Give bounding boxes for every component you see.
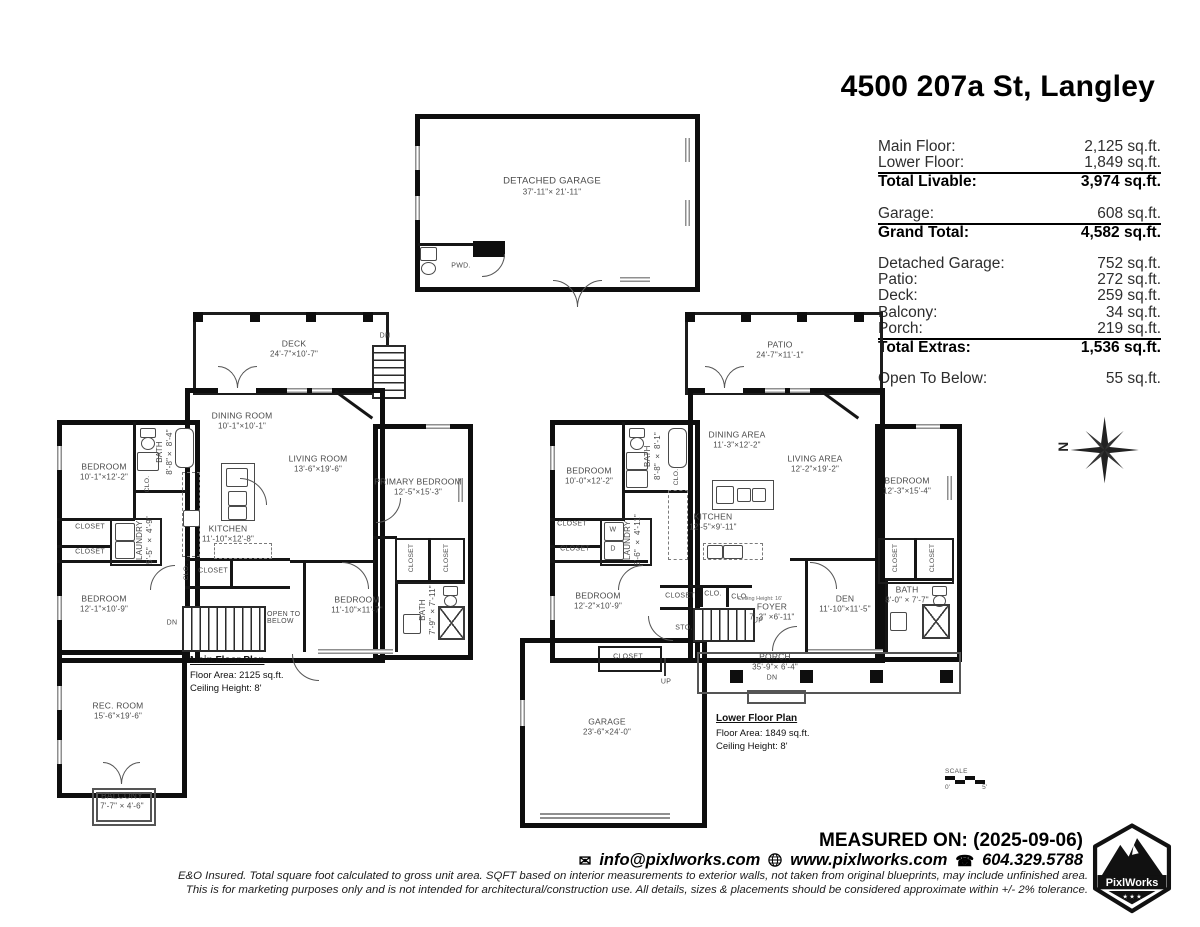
island-cooktop	[716, 486, 734, 504]
wall	[133, 490, 187, 493]
deck-post	[363, 312, 373, 322]
room-label-garage: GARAGE 23'-6"×24'-0"	[583, 716, 631, 737]
stairs-up-label: UP	[661, 679, 671, 686]
table-row: Detached Garage:752 sq.ft.	[878, 256, 1161, 272]
measured-on-label: MEASURED ON: (2025-09-06)	[819, 830, 1083, 852]
patio-post	[741, 312, 751, 322]
scale-end: 5'	[982, 784, 987, 791]
toilet-fixture	[421, 262, 436, 275]
room-label-porch: PORCH 35'-9"× 6'-4"	[752, 651, 798, 672]
room-label-den: DEN 11'-10"×11'-5"	[819, 593, 871, 614]
closet-label: CLOSET	[408, 544, 416, 572]
wall	[805, 558, 808, 652]
wall	[303, 560, 306, 652]
porch-post	[940, 670, 953, 683]
room-label-bedroom2: BEDROOM 12'-2"×10'-9"	[574, 590, 622, 611]
wall	[230, 558, 233, 586]
patio-post	[797, 312, 807, 322]
wall	[726, 585, 729, 607]
room-label-laundry: LAUNDRY 5'-6" × 4'-11"	[623, 514, 643, 566]
wall	[373, 536, 397, 539]
scale-label: SCALE	[945, 768, 993, 775]
table-row-total: Total Livable:3,974 sq.ft.	[878, 174, 1161, 190]
contact-bar: ✉ info@pixlworks.com www.pixlworks.com ☎…	[579, 851, 1083, 870]
wall	[395, 580, 398, 652]
table-row-total: Total Extras:1,536 sq.ft.	[878, 340, 1161, 356]
door-arc	[292, 654, 319, 681]
window	[312, 388, 332, 393]
deck-post	[250, 312, 260, 322]
stove-fixture	[723, 545, 743, 559]
porch-step	[747, 690, 806, 704]
svg-text:PixlWorks: PixlWorks	[1106, 877, 1159, 889]
closet-label: CLO.	[144, 476, 152, 493]
room-label-bath1: BATH 8'-8"× 8'-4"	[155, 429, 175, 474]
toilet-fixture	[141, 437, 155, 450]
dryer-fixture	[115, 541, 135, 559]
sink-fixture	[890, 612, 907, 631]
island-sink	[737, 488, 751, 502]
toilet-fixture	[630, 437, 644, 450]
table-row: Patio:272 sq.ft.	[878, 272, 1161, 288]
closet-label: CLOSET	[557, 521, 587, 528]
room-label-living: LIVING ROOM 13'-6"×19'-6"	[289, 453, 348, 474]
closet-label: CLO.	[704, 591, 722, 598]
room-label-bedroom3: BEDROOM 11'-10"×11'-7"	[331, 594, 383, 615]
porch-post	[800, 670, 813, 683]
scale-bar: SCALE 0' 5'	[945, 768, 993, 791]
window	[57, 596, 62, 620]
window	[790, 388, 810, 393]
table-row: Balcony:34 sq.ft.	[878, 305, 1161, 321]
room-label-rec: REC. ROOM 15'-6"×19'-6"	[93, 700, 144, 721]
room-label-kitchen: KITCHEN 11'-10"×12'-8"	[202, 523, 254, 544]
logo-stars: ★ ★ ★	[1122, 894, 1141, 901]
email-address[interactable]: info@pixlworks.com	[599, 851, 760, 870]
room-label-bedroom1: BEDROOM 10'-1"×12'-2"	[80, 461, 128, 482]
window	[415, 146, 420, 170]
table-row: Open To Below:55 sq.ft.	[878, 371, 1161, 387]
lower-floor-footnote: Lower Floor Plan Floor Area: 1849 sq.ft.…	[716, 712, 809, 754]
island-sink	[752, 488, 766, 502]
table-row: Porch:219 sq.ft.	[878, 321, 1161, 340]
kitchen-counter	[214, 543, 272, 559]
room-label-bedroom2: BEDROOM 12'-1"×10'-9"	[80, 593, 128, 614]
closet-label: CLOSET	[929, 544, 937, 572]
website-url[interactable]: www.pixlworks.com	[790, 851, 947, 870]
window	[685, 200, 690, 226]
closet-label: CLOSET	[75, 524, 105, 531]
compass-rose: N	[1055, 415, 1151, 490]
washer-fixture	[115, 523, 135, 541]
room-label-bedroom1: BEDROOM 10'-0"×12'-2"	[565, 465, 613, 486]
room-label-detached-garage: DETACHED GARAGE 37'-11"× 21'-11"	[503, 176, 601, 199]
storage-label: STO.	[675, 625, 692, 632]
stairs	[693, 608, 755, 642]
room-label-balcony: BALCONY 7'-7" × 4'-6"	[100, 790, 144, 811]
closet-label: CLOSET	[198, 568, 228, 575]
garage-door	[540, 813, 670, 815]
wall	[622, 422, 625, 520]
closet-label: CLOSET	[892, 544, 900, 572]
window	[57, 686, 62, 710]
closet-label: CLOSET	[443, 544, 451, 572]
room-label-foyer: FOYER 7'-3" ×6'-11"	[749, 601, 794, 622]
stairs-dn-label: DN	[380, 333, 391, 340]
room-label-deck: DECK 24'-7"×10'-7"	[270, 338, 318, 359]
bathtub-fixture	[175, 428, 194, 468]
garage-door	[540, 817, 670, 819]
washer-label: W	[610, 527, 617, 534]
stove-fixture	[707, 545, 723, 559]
closet-label: CLO.	[183, 564, 191, 581]
room-label-dining: DINING ROOM 10'-1"×10'-1"	[212, 410, 273, 431]
table-row: Deck:259 sq.ft.	[878, 288, 1161, 304]
wall	[428, 538, 431, 580]
window	[426, 424, 450, 429]
sink-fixture	[420, 247, 437, 261]
open-to-below-label: OPEN TO BELOW	[267, 611, 309, 625]
window	[765, 388, 785, 393]
deck-post	[306, 312, 316, 322]
svg-text:N: N	[1056, 442, 1071, 452]
room-label-bath1: BATH 8'-8" × 8'-1"	[643, 432, 663, 480]
pixlworks-logo: PixlWorks ★ ★ ★	[1090, 823, 1174, 922]
deck-post	[193, 312, 203, 322]
scale-segments	[945, 776, 993, 784]
wall	[660, 607, 692, 610]
bay-window	[318, 649, 393, 654]
closet-label: CLO.	[673, 469, 681, 486]
wall	[790, 558, 875, 561]
closet-label: CLOSET	[75, 549, 105, 556]
wall	[700, 585, 703, 607]
shower-fixture	[438, 606, 465, 640]
room-label-pwd: PWD.	[451, 263, 470, 270]
window	[520, 700, 525, 726]
closet-label: CLOSET	[613, 654, 643, 661]
wall	[185, 586, 290, 589]
patio-post	[854, 312, 864, 322]
kitchen-counter	[668, 490, 688, 560]
wall	[418, 243, 478, 246]
stove-fixture	[183, 510, 200, 527]
window	[57, 446, 62, 470]
room-label-bedroom-r: BEDROOM 12'-3"×15'-4"	[883, 475, 931, 496]
room-label-dining: DINING AREA 11'-3"×12'-2"	[709, 429, 766, 450]
mountain-badge-icon: PixlWorks ★ ★ ★	[1090, 823, 1174, 917]
room-label-living: LIVING AREA 12'-2"×19'-2"	[787, 453, 842, 474]
main-floor-footnote: Main Floor Plan Floor Area: 2125 sq.ft. …	[190, 654, 283, 696]
porch-post	[870, 670, 883, 683]
wall	[660, 585, 752, 588]
closet-label: CLOSET	[665, 593, 695, 600]
wall	[57, 545, 112, 548]
wall	[914, 538, 917, 580]
compass-icon: N	[1055, 415, 1151, 485]
disclaimer-line1: E&O Insured. Total square foot calculate…	[178, 870, 1088, 882]
page-title: 4500 207a St, Langley	[841, 70, 1155, 104]
room-label-laundry: LAUNDRY 5'-5" × 4'-9"	[135, 516, 155, 564]
stairs-dn-label: DN	[167, 620, 178, 627]
window	[415, 196, 420, 220]
table-row: Lower Floor:1,849 sq.ft.	[878, 155, 1161, 174]
room-label-primary: PRIMARY BEDROOM 12'-5"×15'-3"	[374, 476, 462, 497]
wall	[133, 422, 136, 520]
closet-label: CLOSET	[560, 546, 590, 553]
shower-fixture	[922, 604, 950, 639]
porch-post	[730, 670, 743, 683]
phone-icon: ☎	[955, 852, 974, 870]
scale-start: 0'	[945, 784, 950, 791]
porch-dn-label: DN	[767, 675, 778, 682]
bathtub-fixture	[668, 428, 687, 468]
table-row: Garage:608 sq.ft.	[878, 206, 1161, 225]
table-row: Main Floor:2,125 sq.ft.	[878, 139, 1161, 155]
window	[57, 740, 62, 764]
disclaimer-line2: This is for marketing purposes only and …	[186, 884, 1088, 896]
window	[287, 388, 307, 393]
phone-number[interactable]: 604.329.5788	[982, 851, 1083, 870]
room-label-bath2: BATH 7'-9" ×7'-11"	[418, 585, 438, 635]
room-label-kitchen: KITCHEN 12'-5"×9'-11"	[689, 511, 736, 532]
globe-icon	[768, 852, 782, 869]
window	[947, 476, 952, 500]
stairs-arrow	[664, 658, 666, 676]
window	[620, 277, 650, 282]
island-cooktop	[228, 506, 247, 520]
email-icon: ✉	[579, 852, 592, 870]
window	[685, 138, 690, 162]
window	[550, 446, 555, 470]
window	[916, 424, 940, 429]
table-row-total: Grand Total:4,582 sq.ft.	[878, 225, 1161, 241]
room-label-bath2: BATH 8'-0" × 7'-7"	[885, 584, 929, 605]
stairs	[182, 606, 266, 652]
patio-post	[685, 312, 695, 322]
floorplan-sheet: { "title": "4500 207a St, Langley", "are…	[0, 0, 1200, 927]
dryer-label: D	[610, 546, 615, 553]
window	[550, 596, 555, 620]
area-summary-table: Main Floor:2,125 sq.ft. Lower Floor:1,84…	[878, 139, 1161, 387]
room-label-patio: PATIO 24'-7"×11'-1"	[756, 339, 803, 360]
